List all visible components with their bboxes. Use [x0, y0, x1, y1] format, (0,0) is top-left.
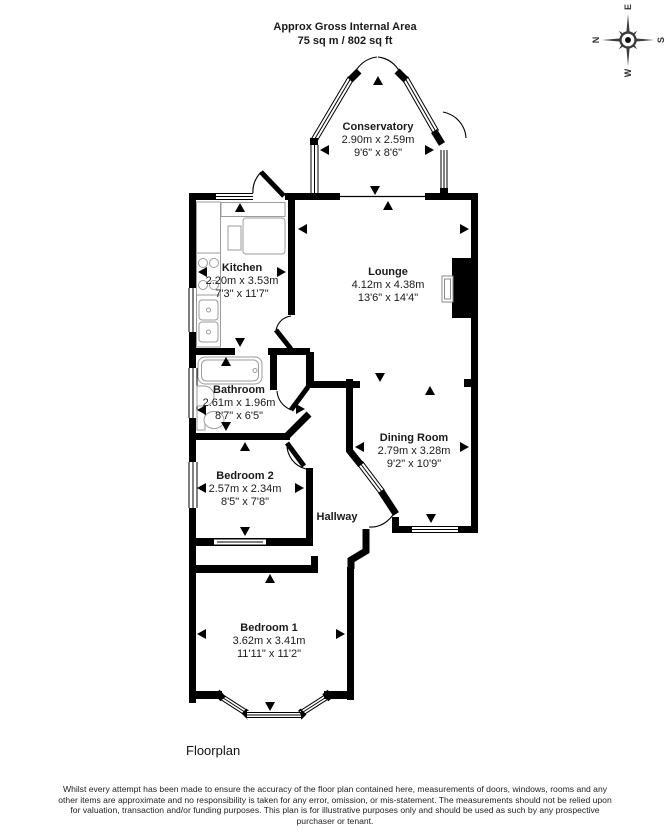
- wall-bedroom1-right: [347, 567, 354, 700]
- wall-kitchen-bottom-left: [189, 348, 235, 355]
- wardrobe-line-bedroom2: [214, 540, 266, 545]
- compass-label-north: N: [591, 37, 601, 44]
- arrow-down-icon: [235, 338, 245, 347]
- arrow-right-icon: [296, 404, 305, 414]
- wall-top-right: [425, 193, 478, 200]
- wall-kitchen-lounge: [288, 197, 295, 315]
- bay-cap-1: [217, 692, 223, 699]
- room-label-bedroom2: Bedroom 2 2.57m x 2.34m 8'5" x 7'8": [209, 470, 282, 509]
- window-kitchen-left: [188, 288, 197, 332]
- wall-stub-bedroom1: [311, 556, 318, 568]
- floorplan-caption: Floorplan: [186, 743, 240, 758]
- door-arc-kitchen-hall: [276, 316, 291, 330]
- title-line2: 75 sq m / 802 sq ft: [273, 34, 416, 48]
- title-line1: Approx Gross Internal Area: [273, 20, 416, 34]
- compass-label-west: W: [623, 68, 633, 77]
- chimney-breast: [452, 258, 471, 318]
- floorplan-page: N E S W Approx Gross Internal Area 75 sq…: [0, 0, 670, 832]
- wall-conservatory-right-stub: [434, 131, 442, 144]
- arrow-right-icon: [295, 483, 304, 493]
- door-arc-conservatory-side: [443, 112, 466, 138]
- arrow-down-icon: [265, 702, 275, 711]
- wall-bedroom1-top: [189, 565, 318, 573]
- arrow-up-icon: [383, 201, 393, 210]
- room-label-kitchen: Kitchen 2.20m x 3.53m 7'3" x 11'7": [206, 262, 279, 301]
- arrow-left-icon: [298, 224, 307, 234]
- arrow-right-icon: [425, 145, 434, 155]
- window-conservatory-left: [310, 145, 318, 193]
- kitchen-counter-top: [221, 203, 285, 217]
- door-arc-bathroom: [277, 391, 291, 410]
- room-label-dining-room: Dining Room 2.79m x 3.28m 9'2" x 10'9": [378, 432, 451, 471]
- room-label-bedroom1: Bedroom 1 3.62m x 3.41m 11'11" x 11'2": [233, 622, 306, 661]
- kitchen-unit: [228, 226, 241, 250]
- wall-dining-angled-upper: [349, 450, 361, 465]
- door-leaf-bedroom2: [287, 443, 304, 466]
- window-bathroom-left: [188, 368, 197, 418]
- room-label-lounge: Lounge 4.12m x 4.38m 13'6" x 14'4": [352, 266, 425, 305]
- wall-vestibule-right: [306, 352, 314, 385]
- window-bay-center: [247, 711, 301, 719]
- room-label-conservatory: Conservatory 2.90m x 2.59m 9'6" x 8'6": [342, 121, 415, 160]
- compass-rose-icon: N E S W: [591, 4, 666, 77]
- arrow-up-icon: [373, 76, 383, 85]
- wall-right-outer: [471, 193, 478, 533]
- wall-left-outer: [189, 193, 196, 703]
- wall-dining-corner: [392, 517, 399, 529]
- bath-tub: [198, 357, 262, 384]
- arrow-down-icon: [370, 186, 380, 195]
- arrow-right-icon: [336, 629, 345, 639]
- door-arc-conservatory-kitchen: [253, 172, 261, 193]
- wall-hallway-jog: [351, 529, 366, 569]
- page-title: Approx Gross Internal Area 75 sq m / 802…: [273, 20, 416, 48]
- arrow-down-icon: [426, 514, 436, 523]
- arrow-up-icon: [425, 386, 435, 395]
- window-bedroom2-left: [188, 462, 197, 508]
- wall-bedroom2-right: [306, 468, 313, 546]
- arrow-right-icon: [460, 224, 469, 234]
- room-label-hallway: Hallway: [317, 511, 358, 524]
- window-conservatory-right: [440, 150, 448, 188]
- door-arc-dining: [369, 515, 393, 527]
- compass-label-south: S: [656, 37, 666, 43]
- arrow-up-icon: [265, 574, 275, 583]
- kitchen-appliance: [243, 218, 285, 254]
- wall-angled-vestibule: [286, 414, 309, 437]
- arrow-left-icon: [197, 629, 206, 639]
- arrow-down-icon: [240, 527, 250, 536]
- floorplan-drawing: N E S W: [0, 0, 670, 832]
- wall-bathroom-bottom: [189, 433, 290, 440]
- wall-dining-angled-lower: [381, 491, 396, 514]
- arrow-right-icon: [460, 442, 469, 452]
- wall-dining-left: [346, 379, 353, 452]
- window-dining-bottom: [412, 526, 458, 534]
- room-label-bathroom: Bathroom 2.61m x 1.96m 8'7" x 6'5": [203, 384, 276, 423]
- arrow-left-icon: [197, 483, 206, 493]
- wall-stub-dining: [464, 379, 471, 387]
- door-leaf-conservatory-kitchen: [261, 172, 284, 196]
- arrow-down-icon: [375, 373, 385, 382]
- bay-cap-4: [325, 692, 331, 699]
- arrow-down-icon: [221, 422, 231, 431]
- arrow-left-icon: [355, 442, 364, 452]
- fireplace: [442, 276, 453, 302]
- window-kitchen-top: [216, 193, 253, 201]
- compass-label-east: E: [623, 4, 633, 10]
- arrow-left-icon: [320, 145, 329, 155]
- disclaimer-text: Whilst every attempt has been made to en…: [55, 784, 615, 826]
- door-leaf-kitchen-hall: [276, 330, 291, 349]
- arrow-up-icon: [240, 442, 250, 451]
